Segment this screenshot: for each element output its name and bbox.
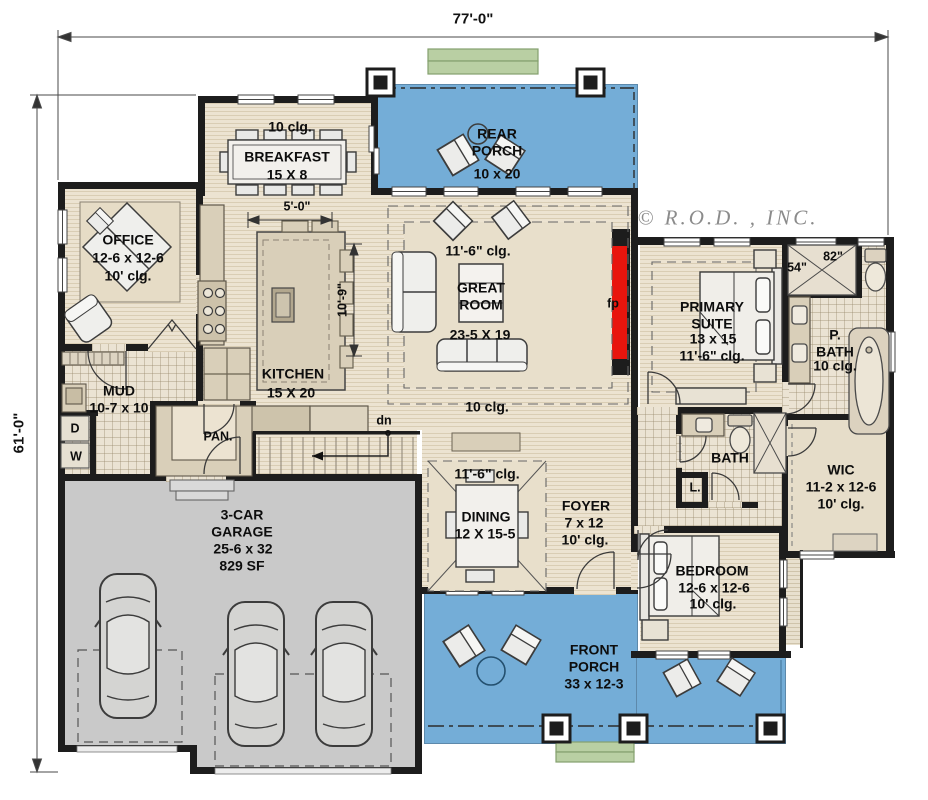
wall xyxy=(782,414,788,426)
wall xyxy=(371,96,378,195)
primary-bath-ceiling-label: 10 clg. xyxy=(813,358,857,375)
bath-door-opening xyxy=(676,434,682,468)
side-deck-floor xyxy=(785,552,801,645)
wall xyxy=(198,96,205,196)
bedroom-size-label: 12-6 x 12-6 xyxy=(678,580,750,597)
wic-name-label: WIC xyxy=(827,462,854,479)
linen-label: L. xyxy=(689,481,700,496)
hall-bath-floor xyxy=(637,414,782,526)
wall xyxy=(634,237,894,245)
office-door-opening xyxy=(148,344,196,352)
wall xyxy=(190,767,422,774)
copyright-text: © R.O.D. , INC. xyxy=(637,206,818,231)
wall xyxy=(58,745,196,752)
floor-plan: 77'-0" 61'-0" © R.O.D. , INC. 10 clg. BR… xyxy=(0,0,928,800)
bath-hall-opening xyxy=(708,502,742,508)
bedroom-name-label: BEDROOM xyxy=(675,563,748,580)
rear-porch-name-label: REAR PORCH xyxy=(472,125,523,158)
kitchen-size-label: 15 X 20 xyxy=(267,385,315,402)
wall xyxy=(150,401,156,478)
office-name-label: OFFICE xyxy=(102,232,153,249)
overall-depth-dimension: 61'-0" xyxy=(11,413,28,454)
wall xyxy=(782,414,888,420)
wall xyxy=(676,472,708,478)
office-ceiling-label: 10' clg. xyxy=(105,268,152,285)
primary-bath-door-opening xyxy=(782,382,789,414)
great-room-kitchen-floor xyxy=(200,195,637,430)
great-room-name-label: GREAT ROOM xyxy=(457,279,505,312)
wall xyxy=(415,478,422,774)
wall xyxy=(886,237,894,558)
primary-suite-size-label: 13 x 15 xyxy=(690,331,737,348)
wic-ceiling-label: 10' clg. xyxy=(818,496,865,513)
wall xyxy=(856,242,862,297)
wall xyxy=(664,526,787,533)
wall xyxy=(800,550,803,648)
island-width-label: 5'-0" xyxy=(284,200,311,215)
wall xyxy=(90,410,96,478)
primary-suite-ceiling-label: 11'-6" clg. xyxy=(679,348,744,365)
wall xyxy=(678,407,788,414)
front-porch-size-label: 33 x 12-3 xyxy=(564,676,623,693)
overall-width-dimension: 77'-0" xyxy=(453,11,494,28)
wall xyxy=(196,182,203,277)
stair-floor xyxy=(251,430,417,478)
garage-door-opening xyxy=(166,474,226,482)
washer-label: W xyxy=(70,450,82,465)
wall xyxy=(126,344,148,351)
wall xyxy=(196,344,203,408)
office-size-label: 12-6 x 12-6 xyxy=(92,250,164,267)
dining-ceiling-label: 11'-6" clg. xyxy=(454,466,519,483)
wall xyxy=(676,412,682,434)
rear-porch-size-label: 10 x 20 xyxy=(474,166,521,183)
garage-area-label: 829 SF xyxy=(219,558,264,575)
primary-suite-name-label: PRIMARY SUITE xyxy=(680,298,744,331)
wall xyxy=(782,456,788,558)
bedroom-door-opening xyxy=(634,526,664,534)
office-kitchen-opening xyxy=(196,275,204,314)
great-room-size-label: 23-5 X 19 xyxy=(450,327,511,344)
breakfast-name-label: BREAKFAST xyxy=(244,149,330,166)
bath-name-label: BATH xyxy=(711,450,749,467)
pantry-door-opening xyxy=(198,401,240,407)
garage-size-label: 25-6 x 32 xyxy=(213,541,272,558)
front-porch-floor-right xyxy=(637,657,785,743)
shower-depth-label: 54" xyxy=(787,261,807,276)
breakfast-ceiling-label: 10 clg. xyxy=(268,119,312,136)
foyer-name-label: FOYER xyxy=(562,498,610,515)
wall xyxy=(58,182,65,752)
mud-size-label: 10-7 x 10 xyxy=(89,400,148,417)
garage-name-label: 3-CAR GARAGE xyxy=(211,506,272,539)
foyer-hall-opening xyxy=(631,552,638,590)
bedroom-ceiling-label: 10' clg. xyxy=(690,596,737,613)
shower-width-label: 82" xyxy=(823,250,843,265)
wic-size-label: 11-2 x 12-6 xyxy=(806,479,877,496)
pantry-label: PAN. xyxy=(204,430,233,445)
front-door-opening xyxy=(574,587,616,595)
wic-door-opening xyxy=(782,426,788,456)
foyer-size-label: 7 x 12 xyxy=(565,515,604,532)
wall xyxy=(782,292,862,298)
wall xyxy=(198,96,378,103)
dining-name-label: DINING xyxy=(462,509,511,526)
fireplace-label: fp xyxy=(607,297,619,312)
wall xyxy=(58,182,205,189)
garage-floor-lower xyxy=(196,745,418,767)
breakfast-size-label: 15 X 8 xyxy=(267,167,307,184)
wall xyxy=(58,344,92,351)
great-room-ceiling-label: 11'-6" clg. xyxy=(445,243,510,260)
wall xyxy=(631,651,791,658)
hall-ceiling-label: 10 clg. xyxy=(465,399,509,416)
dryer-label: D xyxy=(70,422,79,437)
dining-size-label: 12 X 15-5 xyxy=(455,526,516,543)
foyer-ceiling-label: 10' clg. xyxy=(562,532,609,549)
island-length-label: 10'-9" xyxy=(336,283,351,317)
mud-name-label: MUD xyxy=(103,383,135,400)
primary-bath-name-label: P. BATH xyxy=(816,326,854,359)
wall xyxy=(58,474,422,481)
mud-door-opening xyxy=(92,344,126,352)
kitchen-name-label: KITCHEN xyxy=(262,366,324,383)
wall xyxy=(371,188,638,195)
wall xyxy=(250,401,256,478)
hall-opening xyxy=(637,407,678,415)
wall xyxy=(779,551,895,558)
stairs-down-label: dn xyxy=(376,414,391,429)
front-porch-name-label: FRONT PORCH xyxy=(569,641,620,674)
